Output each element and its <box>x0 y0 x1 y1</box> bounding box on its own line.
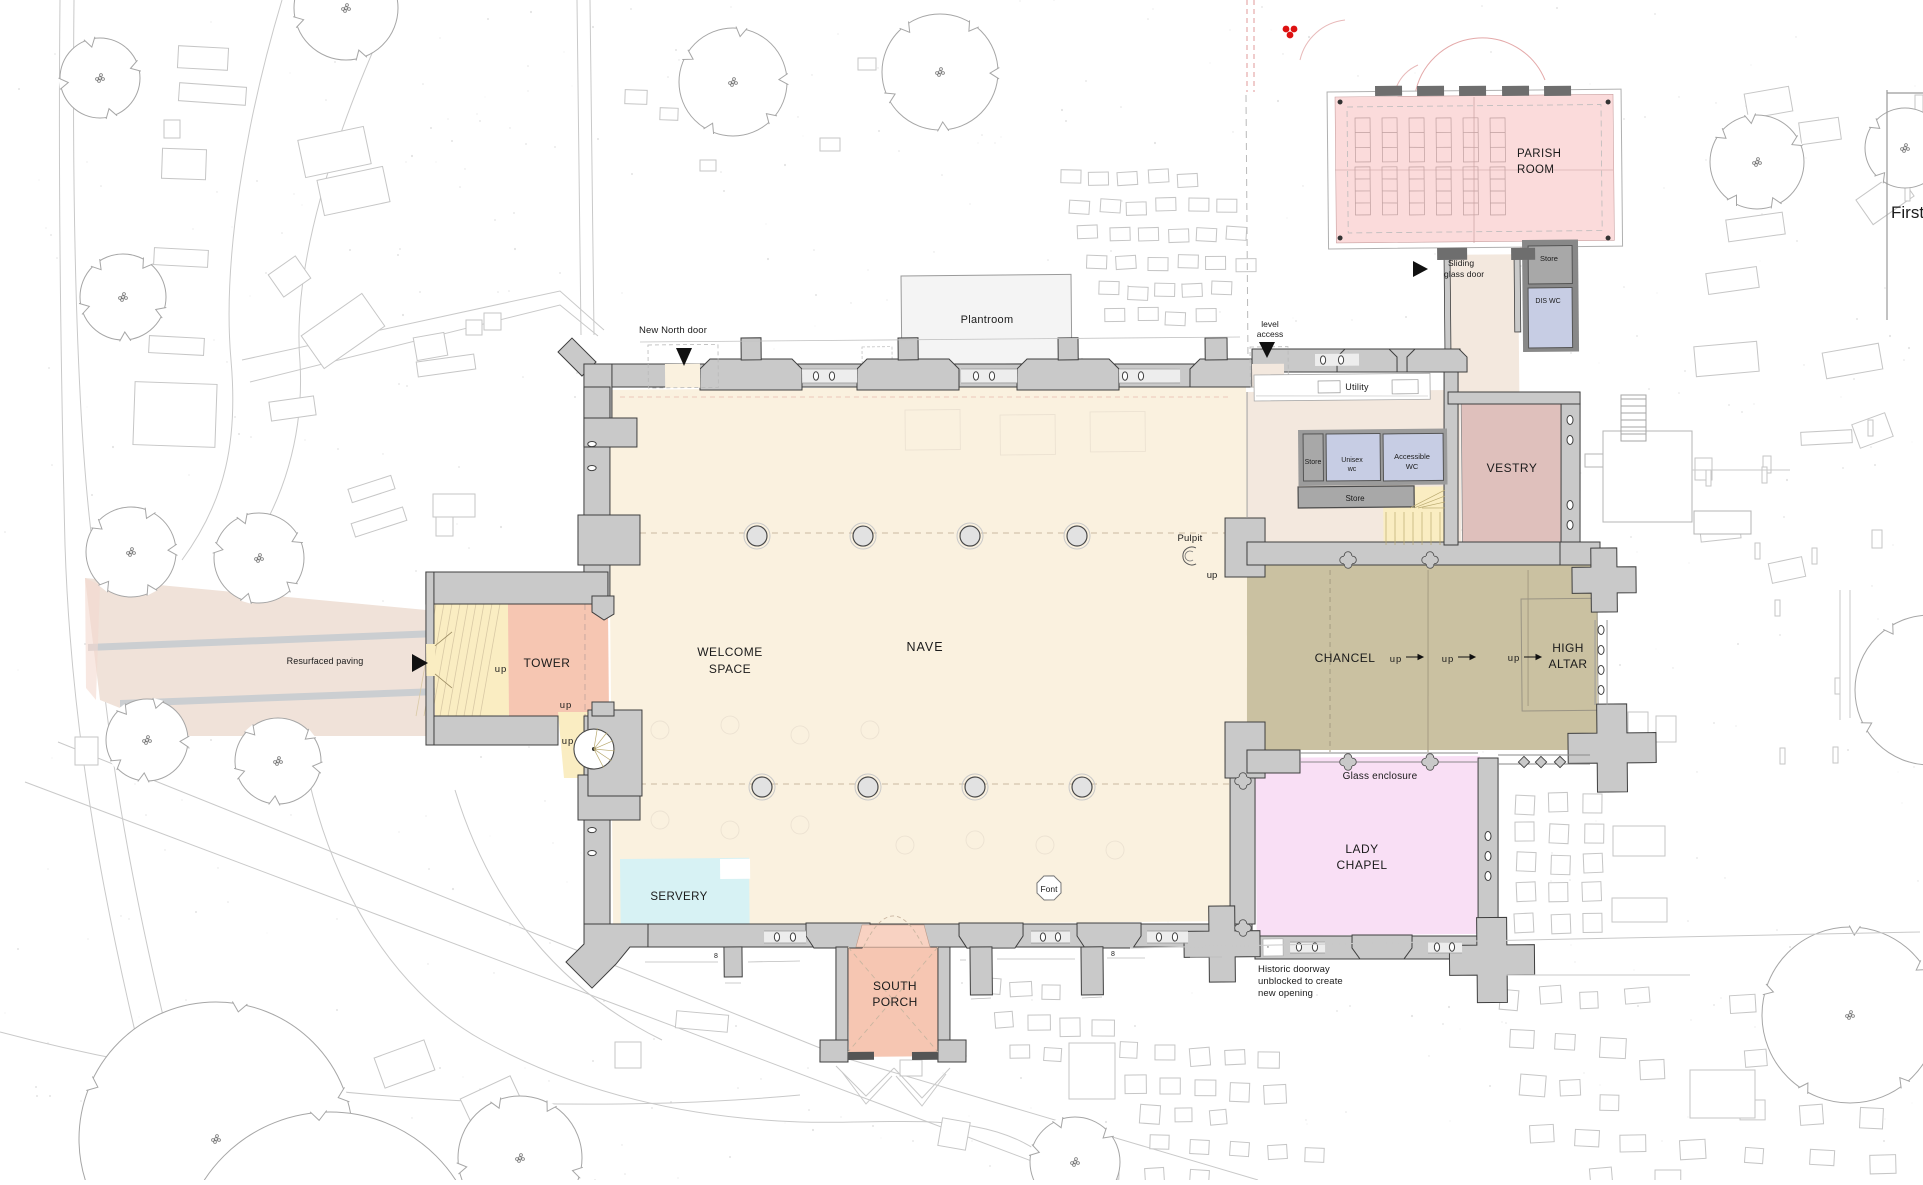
svg-text:Store: Store <box>1345 494 1365 503</box>
svg-text:Font: Font <box>1040 884 1058 894</box>
svg-text:Store: Store <box>1305 459 1322 466</box>
svg-text:Glass enclosure: Glass enclosure <box>1343 771 1418 782</box>
svg-text:Store: Store <box>1540 254 1558 263</box>
svg-text:level: level <box>1261 319 1279 329</box>
svg-text:up: up <box>560 700 573 711</box>
svg-text:up: up <box>562 736 575 747</box>
svg-text:new opening: new opening <box>1258 988 1313 999</box>
svg-text:up: up <box>1390 654 1403 665</box>
svg-text:8: 8 <box>714 953 718 960</box>
svg-text:Sliding: Sliding <box>1448 258 1474 268</box>
svg-text:First: First <box>1891 203 1923 222</box>
svg-text:LADY: LADY <box>1345 842 1378 856</box>
svg-text:CHANCEL: CHANCEL <box>1315 651 1376 665</box>
svg-text:SOUTH: SOUTH <box>873 979 917 993</box>
svg-text:WELCOME: WELCOME <box>697 645 763 659</box>
svg-text:PARISH: PARISH <box>1517 148 1561 160</box>
svg-text:Historic doorway: Historic doorway <box>1258 964 1330 975</box>
svg-text:Pulpit: Pulpit <box>1178 533 1203 544</box>
svg-text:up: up <box>495 664 508 675</box>
svg-text:HIGH: HIGH <box>1552 641 1584 655</box>
svg-text:CHAPEL: CHAPEL <box>1336 858 1387 872</box>
svg-text:TOWER: TOWER <box>524 656 571 670</box>
svg-text:access: access <box>1257 329 1283 339</box>
svg-text:up: up <box>1442 654 1455 665</box>
svg-text:ROOM: ROOM <box>1517 164 1554 176</box>
svg-text:ALTAR: ALTAR <box>1549 657 1588 671</box>
svg-text:glass door: glass door <box>1444 269 1484 279</box>
svg-text:Utility: Utility <box>1345 382 1369 392</box>
svg-text:wc: wc <box>1347 466 1357 473</box>
svg-text:PORCH: PORCH <box>872 995 917 1009</box>
svg-text:Accessible: Accessible <box>1394 452 1430 461</box>
svg-text:Plantroom: Plantroom <box>961 314 1014 326</box>
svg-text:WC: WC <box>1406 462 1419 471</box>
svg-text:unblocked to create: unblocked to create <box>1258 976 1343 987</box>
svg-text:Unisex: Unisex <box>1341 457 1363 464</box>
svg-text:Resurfaced paving: Resurfaced paving <box>287 656 364 666</box>
svg-text:SERVERY: SERVERY <box>650 891 707 903</box>
svg-text:8: 8 <box>1111 951 1115 958</box>
svg-text:up: up <box>1508 653 1521 664</box>
svg-text:SPACE: SPACE <box>709 662 751 676</box>
svg-text:up: up <box>1207 570 1218 581</box>
svg-text:DIS WC: DIS WC <box>1535 298 1560 305</box>
svg-text:New North door: New North door <box>639 325 707 336</box>
svg-text:VESTRY: VESTRY <box>1487 461 1538 475</box>
svg-text:NAVE: NAVE <box>906 640 943 654</box>
